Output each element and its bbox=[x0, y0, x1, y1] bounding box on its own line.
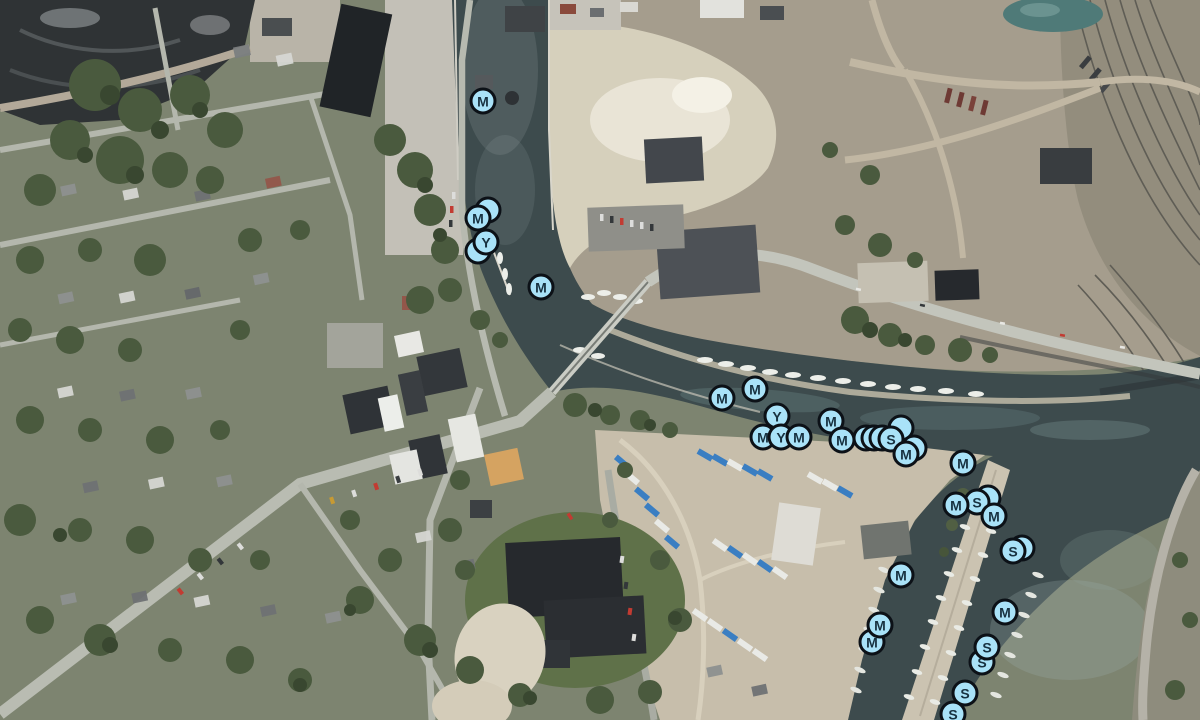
map-canvas[interactable]: MMYMMMYMYMMMSMMSMMSMMMMSSSS bbox=[0, 0, 1200, 720]
map-marker-m[interactable]: M bbox=[742, 376, 769, 403]
map-marker-s[interactable]: S bbox=[940, 701, 967, 720]
map-marker-y[interactable]: Y bbox=[473, 229, 500, 256]
map-marker-m[interactable]: M bbox=[470, 88, 497, 115]
map-marker-m[interactable]: M bbox=[992, 599, 1019, 626]
map-marker-s[interactable]: S bbox=[974, 634, 1001, 661]
map-marker-m[interactable]: M bbox=[465, 205, 492, 232]
map-marker-m[interactable]: M bbox=[829, 427, 856, 454]
map-marker-m[interactable]: M bbox=[528, 274, 555, 301]
map-marker-m[interactable]: M bbox=[893, 441, 920, 468]
map-marker-m[interactable]: M bbox=[950, 450, 977, 477]
map-marker-m[interactable]: M bbox=[981, 503, 1008, 530]
map-marker-m[interactable]: M bbox=[786, 424, 813, 451]
map-marker-m[interactable]: M bbox=[867, 612, 894, 639]
map-marker-m[interactable]: M bbox=[709, 385, 736, 412]
markers-layer: MMYMMMYMYMMMSMMSMMSMMMMSSSS bbox=[0, 0, 1200, 720]
map-marker-m[interactable]: M bbox=[943, 492, 970, 519]
map-marker-s[interactable]: S bbox=[1000, 538, 1027, 565]
map-marker-m[interactable]: M bbox=[888, 562, 915, 589]
